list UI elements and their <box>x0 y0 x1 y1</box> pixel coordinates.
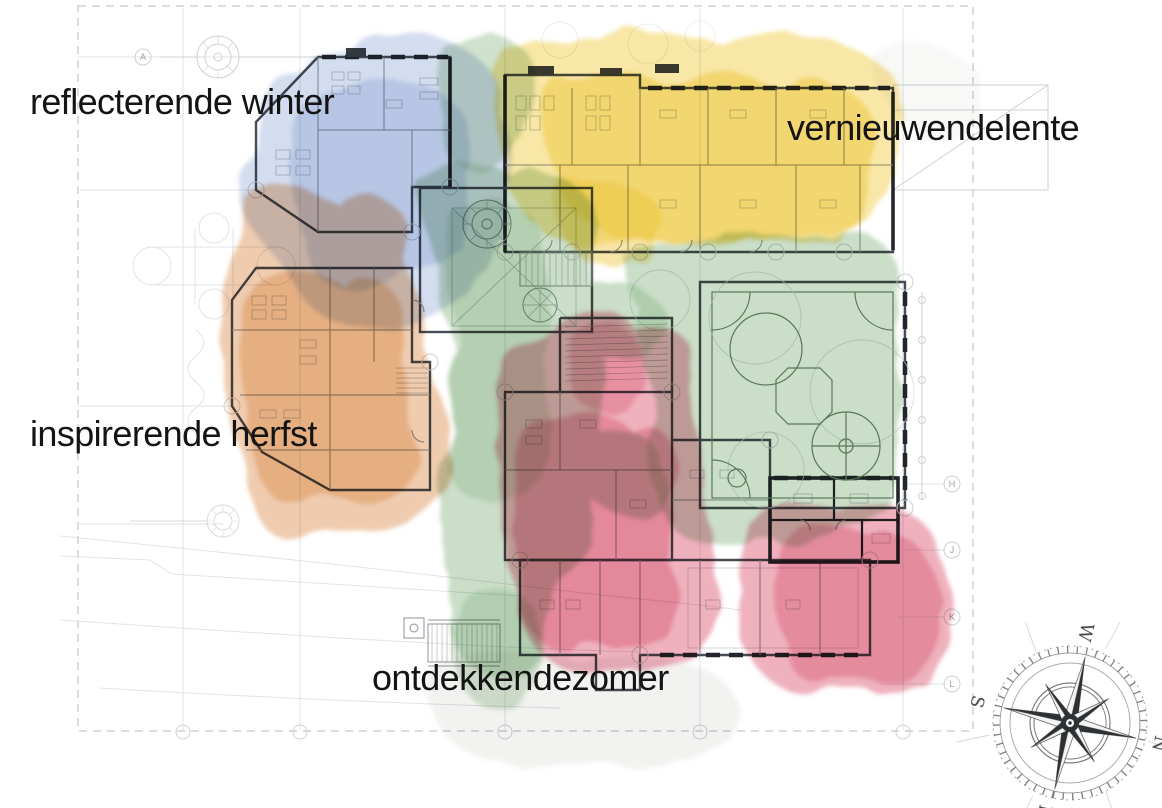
label-winter: reflecterende winter <box>30 82 334 122</box>
grid-letter-k: K <box>949 612 955 622</box>
compass-e: E <box>1032 803 1055 808</box>
floor-plan-canvas: A H J K L <box>0 0 1162 808</box>
wash-herfst <box>218 189 447 544</box>
compass-n: N <box>1147 734 1162 754</box>
spiral-tree-south <box>130 505 239 537</box>
label-zomer: ontdekkendezomer <box>372 658 669 698</box>
grid-letter-h: H <box>949 479 956 489</box>
grid-letter-l: L <box>949 679 954 689</box>
grid-letter-j: J <box>950 545 955 555</box>
colonnade <box>919 292 926 500</box>
label-lente: vernieuwendelente <box>787 108 1079 148</box>
compass-s: S <box>965 693 988 710</box>
compass-rose: N E S W <box>942 592 1162 808</box>
compass-w: W <box>1073 621 1098 644</box>
label-herfst: inspirerende herfst <box>30 414 317 454</box>
grid-letter-a: A <box>140 52 146 62</box>
